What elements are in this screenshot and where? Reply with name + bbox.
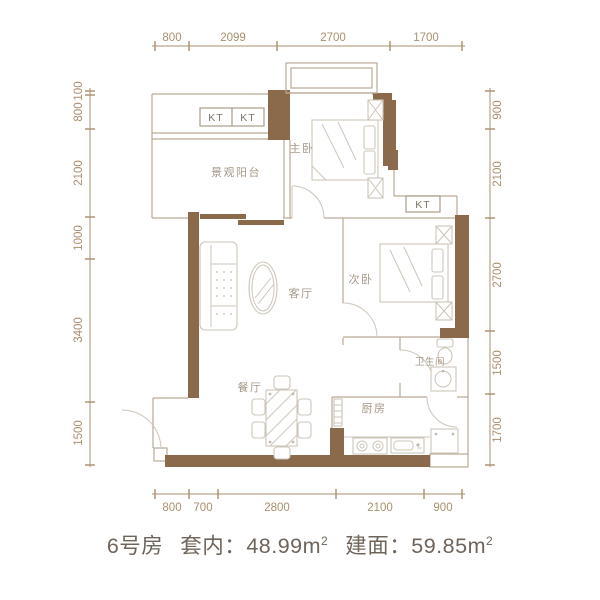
bay-window: [286, 63, 377, 93]
balcony-slider-leaf-2: [238, 220, 284, 225]
room-label-master-bedroom: 主卧: [290, 142, 315, 155]
dimension-chain-left: 100 800 2100 1000 3400 1500: [73, 81, 95, 467]
door-arc-kitchen: [427, 397, 457, 427]
dim-top-0: 800: [162, 32, 181, 44]
room-label-balcony: 景观阳台: [211, 165, 261, 179]
dim-bottom-2: 2800: [264, 502, 290, 514]
room-label-bathroom: 卫生间: [415, 356, 445, 368]
dim-left-4: 3400: [73, 317, 85, 343]
dim-left-3: 1000: [73, 225, 85, 251]
wardrobe-master-top: [368, 100, 383, 120]
inner-area-value: 48.99: [246, 534, 302, 558]
dim-right-2: 2700: [492, 262, 504, 288]
dim-top-1: 2099: [220, 32, 246, 44]
water-heater: [334, 399, 342, 426]
dim-bottom-3: 2100: [367, 502, 393, 514]
dimension-chain-top: 800 2099 2700 1700: [152, 32, 465, 51]
dim-right-4: 1700: [492, 417, 504, 443]
plan-title: 6号房套内：48.99m2建面：59.85m2: [0, 529, 600, 560]
room-label-second-bedroom: 次卧: [349, 272, 374, 286]
wall-master-left: [268, 90, 290, 140]
room-label-kitchen: 厨房: [362, 402, 387, 415]
door-arc-entry: [122, 410, 161, 449]
wall-bottom: [165, 455, 430, 467]
wardrobe-second-bottom: [436, 302, 452, 320]
dim-top-2: 2700: [320, 32, 346, 44]
kt-label-2: KT: [240, 112, 255, 124]
balcony-slider-leaf-1: [200, 214, 246, 219]
room-number: 6号房: [107, 534, 163, 558]
wash-basin: [431, 367, 456, 391]
dining-chair-top: [274, 376, 290, 389]
door-arc-second: [343, 303, 377, 337]
inner-area-label: 套内：: [180, 534, 246, 558]
floor-plan-canvas: 800 2099 2700 1700 100 800 2100 1000 340…: [0, 0, 600, 600]
dim-right-3: 1500: [492, 350, 504, 376]
floor-plan-page: 800 2099 2700 1700 100 800 2100 1000 340…: [0, 0, 600, 600]
stove: [353, 438, 387, 454]
wall-second-right: [455, 215, 469, 335]
wall-living-left: [188, 212, 199, 398]
dim-bottom-1: 700: [193, 502, 212, 514]
coffee-table: [249, 262, 277, 314]
inner-area-sup: 2: [321, 534, 328, 548]
dim-bottom-0: 800: [162, 502, 181, 514]
dimension-chain-bottom: 800 700 2800 2100 900: [152, 489, 465, 514]
build-area-unit: m: [468, 534, 486, 558]
door-arc-master: [292, 186, 324, 218]
dining-chair-bottom: [274, 447, 290, 459]
dim-right-1: 2100: [492, 161, 504, 187]
dim-left-5: 1500: [73, 420, 85, 446]
dim-right-0: 900: [492, 100, 504, 119]
fridge: [431, 429, 458, 453]
kt-platform-topleft: KT KT: [200, 108, 264, 126]
kt-label-3: KT: [415, 199, 430, 211]
wardrobe-master-bottom: [368, 178, 383, 198]
dim-left-0: 100: [73, 81, 85, 100]
dim-left-2: 2100: [73, 160, 85, 186]
dining-chair-right-2: [298, 422, 311, 438]
dim-bottom-4: 900: [433, 502, 452, 514]
kt-label-1: KT: [208, 112, 223, 124]
dining-chair-left-1: [252, 399, 265, 415]
sofa: [200, 242, 237, 330]
wall-kt-notch: [388, 150, 398, 170]
room-label-living-room: 客厅: [289, 286, 314, 300]
wall-bathroom-top: [440, 328, 469, 338]
dining-chair-right-1: [298, 399, 311, 415]
dining-chair-left-2: [252, 422, 265, 438]
build-area-label: 建面：: [345, 534, 411, 558]
kitchen-counter: [334, 399, 458, 454]
bed-master: [312, 120, 378, 180]
build-area-value: 59.85: [411, 534, 467, 558]
kt-platform-right: KT: [406, 196, 440, 212]
inner-area-unit: m: [303, 534, 321, 558]
wardrobe-second-top: [436, 226, 452, 244]
sink: [391, 438, 424, 453]
wall-kitchen-left: [330, 428, 344, 455]
bed-second: [380, 244, 448, 302]
dim-left-1: 800: [73, 102, 85, 121]
room-label-dining-room: 餐厅: [238, 380, 263, 394]
dim-top-3: 1700: [413, 32, 439, 44]
build-area-sup: 2: [486, 534, 493, 548]
dimension-chain-right: 900 2100 2700 1500 1700: [485, 88, 504, 467]
